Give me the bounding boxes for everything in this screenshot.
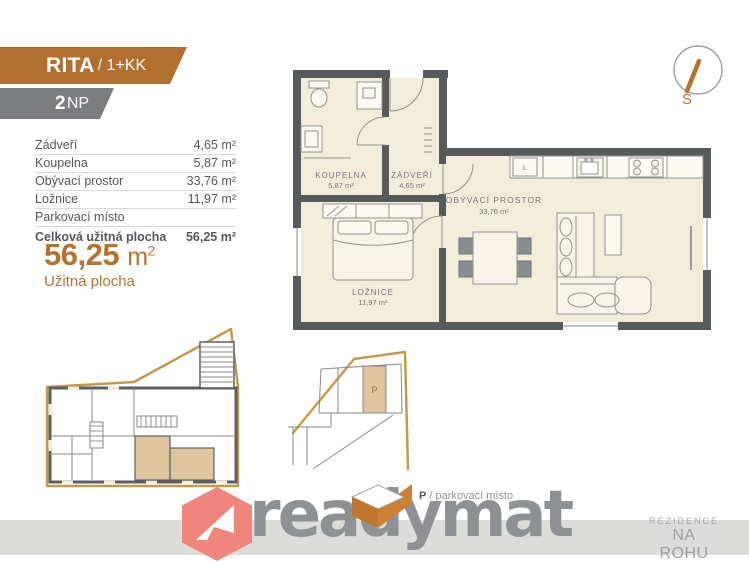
row-label: Obývací prostor [35,173,123,190]
table-row: Ložnice 11,97 m² [35,191,236,209]
fridge-label: L [523,163,527,172]
room-label-obyvaci: OBÝVACÍ PROSTOR [446,195,542,205]
row-value: 5,87 m² [194,155,236,172]
project-name: REZIDENCE NA ROHU [648,516,720,562]
room-label-koupelna: KOUPELNA [315,171,367,180]
project-name-line2: NA ROHU [648,527,720,562]
total-area-value: 56,25 m2 [44,239,155,272]
room-label-zadveri: ZÁDVEŘÍ [391,171,433,180]
parking-legend-icon [344,477,418,529]
room-area-obyvaci: 33,76 m² [479,207,509,216]
parking-legend-caption: / parkovací místo [429,490,513,502]
floor-number: 2 [55,93,66,115]
room-area-zadveri: 4,65 m² [399,181,425,190]
total-area-summary: 56,25 m2 Užitná plocha [44,239,155,290]
wardrobe-icon [323,204,422,218]
mini-building-plan [42,320,254,508]
room-area-loznice: 11,97 m² [358,298,388,307]
parking-legend-text: P / parkovací místo [419,490,513,502]
table-row: Zádveří 4,65 m² [35,137,236,155]
mini-parking-plan: P [283,343,425,485]
toilet-icon [309,81,329,88]
total-area-number: 56,25 [44,237,119,272]
floor-plan-page: RITA / 1+KK 2 NP Zádveří 4,65 m² Koupeln… [0,0,749,562]
area-table: Zádveří 4,65 m² Koupelna 5,87 m² Obývací… [35,137,236,248]
row-label: Koupelna [35,155,88,172]
kitchen-counter [510,156,703,178]
room-label-loznice: LOŽNICE [352,288,394,297]
row-label: Ložnice [35,191,78,208]
row-value: 4,65 m² [194,137,236,154]
table-row: Obývací prostor 33,76 m² [35,173,236,191]
floor-suffix: NP [67,95,89,113]
row-value: 11,97 m² [188,191,236,208]
parking-spot-label: P [371,385,377,395]
table-row: Koupelna 5,87 m² [35,155,236,173]
floor-banner: 2 NP [0,88,114,119]
total-area-caption: Užitná plocha [44,273,155,290]
tv-stand-icon [605,215,621,255]
row-value: 56,25 m² [186,227,236,248]
unit-name-banner: RITA / 1+KK [0,47,187,84]
dining-table-icon [473,232,517,284]
bedroom-furniture [323,204,422,280]
total-area-unit: m2 [127,243,155,271]
parking-legend-symbol: P [419,490,426,502]
project-name-line1: REZIDENCE [648,516,720,526]
main-floor-plan: L [293,70,713,332]
unit-type: / 1+KK [98,57,146,75]
unit-name: RITA [46,54,95,78]
room-area-koupelna: 5,87 m² [328,181,354,190]
readymat-logo-icon [182,487,252,561]
row-label: Zádveří [35,137,77,154]
table-row: Parkovací místo [35,209,236,227]
row-label: Parkovací místo [35,209,125,226]
row-value: 33,76 m² [187,173,236,190]
stove-icon [629,158,663,177]
